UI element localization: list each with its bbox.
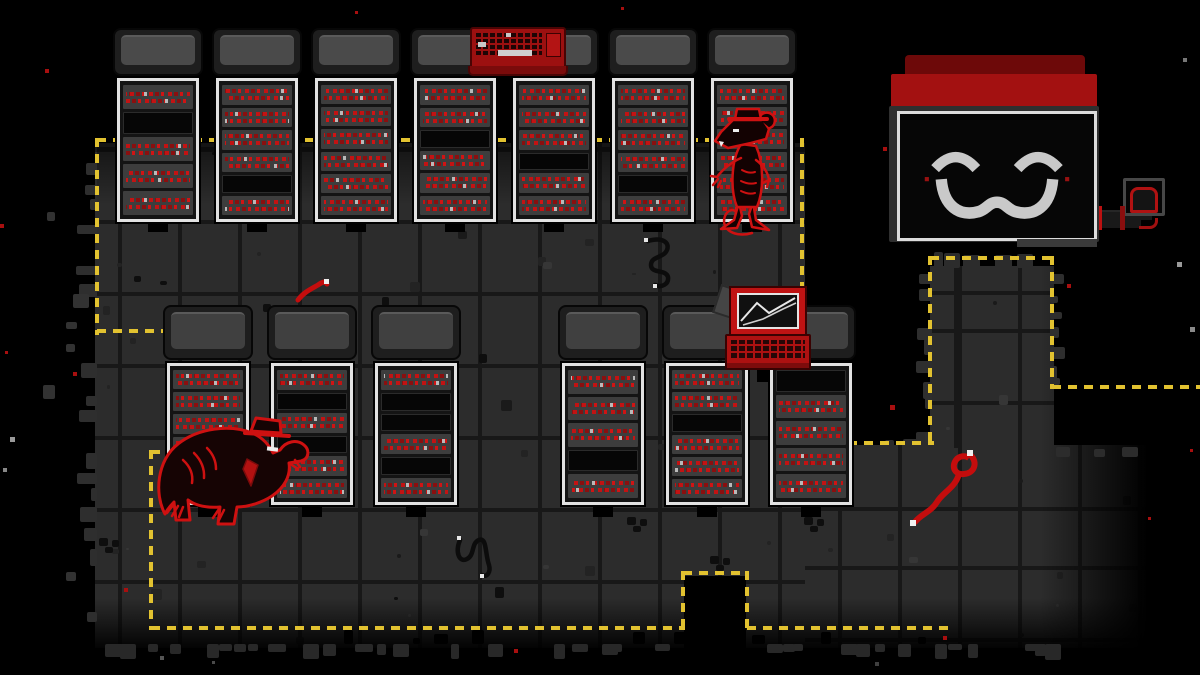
floor-edge-bump <box>76 266 97 275</box>
debris-dot-red <box>124 588 128 592</box>
server-unit <box>568 423 638 447</box>
floor-speckle <box>1123 496 1131 504</box>
floor-edge-bump <box>148 644 158 652</box>
floor-edge-bump <box>303 644 319 659</box>
floor-speckle <box>1057 572 1063 579</box>
keyboard-white-key <box>506 33 511 37</box>
rack-status-text <box>720 96 784 100</box>
floor-speckle <box>130 338 136 343</box>
floor-edge-bump <box>767 644 782 653</box>
server-unit <box>321 174 391 193</box>
rack-status-text <box>423 119 487 123</box>
floor-speckle <box>632 273 635 276</box>
server-rack-header <box>163 305 253 360</box>
pipe-fitting <box>1093 176 1165 232</box>
rack-header-panel <box>319 35 393 65</box>
floor-edge-bump <box>898 644 911 657</box>
floor-edge-notch <box>344 630 353 644</box>
floor-edge-bump <box>120 644 136 659</box>
rack-status-text <box>621 96 685 100</box>
boundary-dash <box>930 256 1056 260</box>
debris-dot-red <box>1067 284 1071 288</box>
rack-status-text <box>522 96 586 100</box>
rack-status-text <box>324 178 388 182</box>
floor-edge-bump <box>572 644 589 652</box>
rack-status-text <box>126 144 190 148</box>
rat-standing-sprite <box>706 106 786 238</box>
rack-status-text <box>176 396 240 400</box>
rack-status-text <box>675 490 739 494</box>
laptop-screen <box>737 293 799 329</box>
game-viewport <box>0 0 1200 675</box>
rack-header-panel <box>171 312 245 349</box>
floor-edge-bump <box>219 644 232 651</box>
rack-status-text <box>176 381 240 385</box>
server-unit <box>420 85 490 105</box>
floor-speckle <box>126 548 129 550</box>
rack-status-text <box>225 119 289 123</box>
boundary-dash <box>1050 256 1054 389</box>
vent-holes <box>627 517 636 525</box>
keyboard-device[interactable] <box>470 27 566 69</box>
server-unit <box>519 85 589 105</box>
floor-edge-notch <box>472 630 483 644</box>
floor-edge-blob <box>66 572 76 581</box>
server-rack-header <box>558 305 648 360</box>
debris-dot-gray <box>212 661 215 664</box>
floor-edge-bump <box>451 644 459 659</box>
server-unit <box>420 196 490 216</box>
floor-edge-notch <box>821 632 831 644</box>
floor-edge-bump <box>488 644 503 657</box>
floor-edge-notch <box>752 635 765 644</box>
boundary-dash <box>1052 385 1200 389</box>
floor-edge-bump <box>935 644 948 659</box>
server-unit <box>519 108 589 128</box>
laptop-base <box>727 363 809 368</box>
server-unit <box>519 130 589 150</box>
server-rack <box>414 78 496 222</box>
server-unit <box>776 421 846 445</box>
floor-edge-bump <box>613 644 622 652</box>
rack-status-text <box>384 439 448 443</box>
rack-status-text <box>384 446 448 450</box>
server-unit <box>173 370 243 389</box>
server-rack-header <box>608 28 698 76</box>
rack-status-text <box>324 185 388 189</box>
vent-holes <box>640 519 647 526</box>
rack-status-text <box>675 374 739 378</box>
red-worm-small-sprite <box>294 276 334 304</box>
floor-edge-bump <box>323 644 336 656</box>
server-unit-blank <box>568 450 638 472</box>
server-rack <box>513 78 595 222</box>
floor-edge-bump <box>1094 449 1104 457</box>
rack-status-text <box>522 119 586 123</box>
floor-speckle <box>117 263 121 266</box>
floor-edge-bump <box>91 488 97 501</box>
rack-status-text <box>324 163 388 167</box>
rack-foot <box>697 505 717 517</box>
server-unit <box>420 173 490 193</box>
server-unit <box>672 457 742 476</box>
server-rack <box>117 78 199 222</box>
rack-status-text <box>522 89 586 93</box>
rack-status-text <box>423 200 487 204</box>
server-rack-header <box>212 28 302 76</box>
rack-status-text <box>324 140 388 144</box>
rack-status-text <box>225 200 289 204</box>
floor-edge-bump <box>1056 447 1070 457</box>
server-unit <box>519 196 589 216</box>
boundary-dash <box>800 138 804 310</box>
rack-status-text <box>571 403 635 407</box>
server-unit-blank <box>123 112 193 134</box>
floor-speckle <box>397 554 401 558</box>
server-unit <box>381 370 451 390</box>
rack-status-text <box>571 488 635 492</box>
rack-status-text <box>225 112 289 116</box>
boundary-dash <box>97 329 167 333</box>
server-unit <box>222 130 292 150</box>
server-rack-header <box>267 305 357 360</box>
rack-status-text <box>675 396 739 400</box>
server-unit <box>568 397 638 421</box>
debris-dot-red <box>1148 517 1151 520</box>
server-unit <box>618 130 688 150</box>
debris-dot-red <box>5 351 8 354</box>
server-unit <box>672 392 742 411</box>
monitor-cap-top <box>905 55 1085 75</box>
server-rack <box>216 78 298 222</box>
server-unit <box>420 151 490 171</box>
server-unit <box>717 85 787 104</box>
floor-speckle <box>134 276 141 281</box>
server-unit <box>321 196 391 215</box>
floor-speckle <box>909 557 918 563</box>
rack-status-text <box>522 177 586 181</box>
floor-edge-notch <box>633 632 644 644</box>
rack-status-text <box>225 164 289 168</box>
server-unit-blank <box>618 175 688 193</box>
rack-foot <box>445 222 465 232</box>
rack-header-panel <box>616 35 690 65</box>
server-unit <box>222 153 292 173</box>
rack-status-text <box>225 141 289 145</box>
rack-status-text <box>384 490 448 494</box>
floor-speckle <box>197 561 206 568</box>
rack-status-text <box>571 376 635 380</box>
server-unit-blank <box>222 175 292 193</box>
rack-status-text <box>384 483 448 487</box>
server-unit <box>123 137 193 161</box>
floor-edge-bump <box>1045 644 1060 660</box>
floor-edge-blob <box>73 294 89 309</box>
rack-status-text <box>225 96 289 100</box>
rack-status-text <box>675 468 739 472</box>
pipe-elbow <box>1139 218 1158 229</box>
floor-edge-bump <box>655 644 670 651</box>
server-rack-header <box>707 28 797 76</box>
floor-edge-bump <box>268 644 285 652</box>
rack-status-text <box>675 461 739 465</box>
rack-status-text <box>324 200 388 204</box>
floor-speckle <box>585 239 594 247</box>
cable-worm-sprite <box>638 232 688 294</box>
floor-edge-bump <box>393 644 409 657</box>
debris-dot-red <box>943 636 947 640</box>
rack-status-text <box>423 177 487 181</box>
floor-edge-bump <box>79 410 97 422</box>
server-unit <box>672 435 742 454</box>
smiley-face-icon <box>900 114 1094 238</box>
floor-edge-bump <box>80 507 97 522</box>
floor-edge-bump <box>86 453 97 470</box>
vent-holes <box>105 547 113 553</box>
server-unit <box>123 164 193 188</box>
server-rack-header <box>113 28 203 76</box>
vent-holes <box>804 517 813 525</box>
rack-status-text <box>280 381 344 385</box>
rack-status-text <box>324 156 388 160</box>
server-unit <box>222 85 292 105</box>
server-unit-blank <box>277 393 347 411</box>
floor-speckle <box>495 587 505 598</box>
rack-foot <box>801 505 821 517</box>
rack-status-text <box>779 427 843 431</box>
rack-status-text <box>571 481 635 485</box>
rack-status-text <box>176 374 240 378</box>
cable-worm-upper[interactable] <box>638 232 688 294</box>
rack-status-text <box>126 178 190 182</box>
floor-speckle <box>296 637 305 644</box>
rack-status-text <box>779 408 843 412</box>
vent-holes <box>633 526 641 532</box>
rack-status-text <box>324 89 388 93</box>
rack-foot <box>346 222 366 232</box>
debris-dot-red <box>621 7 624 10</box>
floor-edge-bump <box>77 473 97 485</box>
rack-status-text <box>423 162 487 166</box>
boundary-dash <box>928 256 932 445</box>
laptop-device[interactable] <box>725 286 811 374</box>
server-unit-blank <box>519 153 589 171</box>
rack-status-text <box>423 96 487 100</box>
rack-status-text <box>675 403 739 407</box>
rack-status-text <box>423 207 487 211</box>
rack-foot <box>247 222 267 232</box>
boundary-dash <box>95 138 99 335</box>
floor-edge-bump <box>1035 644 1046 656</box>
server-rack-header <box>311 28 401 76</box>
floor-speckle <box>828 548 833 552</box>
rack-status-text <box>571 410 635 414</box>
rack-status-text <box>522 184 586 188</box>
rack-status-text <box>126 198 190 202</box>
server-unit <box>672 479 742 498</box>
rack-status-text <box>522 141 586 145</box>
floor-edge-bump <box>1122 447 1138 457</box>
rack-status-text <box>675 381 739 385</box>
floor-edge-bump <box>793 644 803 651</box>
rack-status-text <box>779 461 843 465</box>
rack-status-text <box>126 205 190 209</box>
floor-edge-bump <box>86 396 97 406</box>
vent-holes <box>710 556 719 564</box>
debris-dot-gray <box>875 662 879 666</box>
server-unit <box>568 474 638 498</box>
floor-speckle <box>521 450 528 457</box>
server-unit <box>321 129 391 148</box>
floor-edge-bump <box>934 252 943 268</box>
server-unit <box>776 474 846 498</box>
floor-speckle <box>999 395 1008 405</box>
floor-edge-bump <box>84 528 97 541</box>
server-unit-blank <box>381 393 451 411</box>
floor-edge-bump <box>355 644 372 652</box>
rack-status-text <box>621 157 685 161</box>
floor-edge-blob <box>43 385 55 400</box>
rat-standing[interactable] <box>706 106 786 238</box>
rack-header-panel <box>379 312 453 349</box>
debris-dot-gray <box>1183 58 1187 62</box>
debris-dot-gray <box>1177 262 1182 267</box>
rack-status-text <box>779 434 843 438</box>
keyboard-white-key <box>478 42 486 47</box>
server-rack <box>315 78 397 222</box>
rack-status-text <box>675 446 739 450</box>
server-rack <box>562 363 644 505</box>
floor-speckle <box>887 534 894 541</box>
debris-dot-red <box>890 405 895 410</box>
floor-edge-bump <box>968 644 978 658</box>
rat-hunched[interactable] <box>150 414 318 536</box>
vent-holes <box>112 540 119 547</box>
rack-status-text <box>225 157 289 161</box>
server-rack <box>375 363 457 505</box>
floor-edge-bump <box>948 644 962 650</box>
rack-status-text <box>571 429 635 433</box>
debris-dot-red <box>1190 449 1193 452</box>
red-worm-small[interactable] <box>294 276 334 304</box>
rack-status-text <box>126 92 190 96</box>
server-unit <box>568 370 638 394</box>
rack-foot <box>544 222 564 232</box>
rack-status-text <box>176 403 240 407</box>
rack-header-panel <box>220 35 294 65</box>
keyboard-spacebar <box>498 50 532 56</box>
server-unit <box>618 108 688 128</box>
floor-speckle <box>543 262 552 268</box>
floor-edge-notch <box>413 638 421 644</box>
server-unit <box>222 108 292 128</box>
server-unit <box>173 392 243 411</box>
rack-status-text <box>423 155 487 159</box>
rack-status-text <box>384 381 448 385</box>
debris-dot-red <box>45 69 49 73</box>
rack-header-panel <box>121 35 195 65</box>
rack-status-text <box>522 200 586 204</box>
cable-worm-sprite <box>448 528 506 586</box>
floor-speckle <box>1129 604 1137 612</box>
rack-foot <box>148 222 168 232</box>
server-unit <box>321 85 391 104</box>
rack-foot <box>643 222 663 232</box>
server-unit <box>277 370 347 390</box>
vent-holes <box>817 519 824 526</box>
server-unit-blank <box>420 130 490 148</box>
vent-holes <box>99 538 108 546</box>
debris-dot-red <box>883 147 887 151</box>
debris-dot-red <box>0 224 4 228</box>
laptop-screen-frame <box>729 286 807 338</box>
debris-dot-red <box>73 372 77 376</box>
floor-edge-notch <box>674 632 686 644</box>
floor-edge-bump <box>248 644 258 651</box>
floor-edge-bump <box>377 644 385 655</box>
rack-header-panel <box>275 312 349 349</box>
rack-status-text <box>571 436 635 440</box>
red-worm-large[interactable] <box>903 440 983 532</box>
rack-status-text <box>571 383 635 387</box>
vent-holes <box>810 526 818 532</box>
server-rack <box>612 78 694 222</box>
rack-status-text <box>423 89 487 93</box>
rack-status-text <box>779 454 843 458</box>
rack-status-text <box>280 374 344 378</box>
floor-edge-bump <box>207 644 219 658</box>
rack-status-text <box>225 134 289 138</box>
floor-edge-notch <box>434 634 448 644</box>
server-unit <box>321 107 391 126</box>
monitor-foot <box>1017 239 1097 247</box>
rack-status-text <box>522 134 586 138</box>
monitor-screen <box>897 111 1097 241</box>
server-unit <box>321 152 391 171</box>
rack-status-text <box>779 481 843 485</box>
rack-status-text <box>621 89 685 93</box>
debris-dot-gray <box>3 468 7 472</box>
rat-hunched-sprite <box>150 414 318 536</box>
floor-edge-notch <box>918 637 926 644</box>
rack-status-text <box>621 134 685 138</box>
server-rack-header <box>371 305 461 360</box>
boundary-dash <box>681 571 685 630</box>
rack-header-panel <box>715 35 789 65</box>
server-unit <box>222 196 292 216</box>
cable-worm-lower[interactable] <box>448 528 506 586</box>
server-unit <box>123 191 193 215</box>
floor-edge-blob <box>66 344 76 352</box>
debris-dot-red <box>355 11 358 14</box>
rack-foot <box>406 505 426 517</box>
rack-status-text <box>423 112 487 116</box>
server-unit-blank <box>381 414 451 432</box>
floor-edge-bump <box>90 549 97 565</box>
boundary-dash <box>747 626 950 630</box>
rack-status-text <box>324 96 388 100</box>
keyboard-enter-key <box>546 33 561 57</box>
floor-notch <box>684 576 746 648</box>
keyboard-base <box>468 66 568 76</box>
server-unit <box>381 434 451 454</box>
rack-status-text <box>522 112 586 116</box>
floor-speckle <box>420 529 428 536</box>
server-unit <box>776 395 846 419</box>
mainframe-monitor[interactable] <box>889 55 1101 247</box>
pipe-ring <box>1120 206 1125 230</box>
floor-speckle <box>501 400 511 411</box>
